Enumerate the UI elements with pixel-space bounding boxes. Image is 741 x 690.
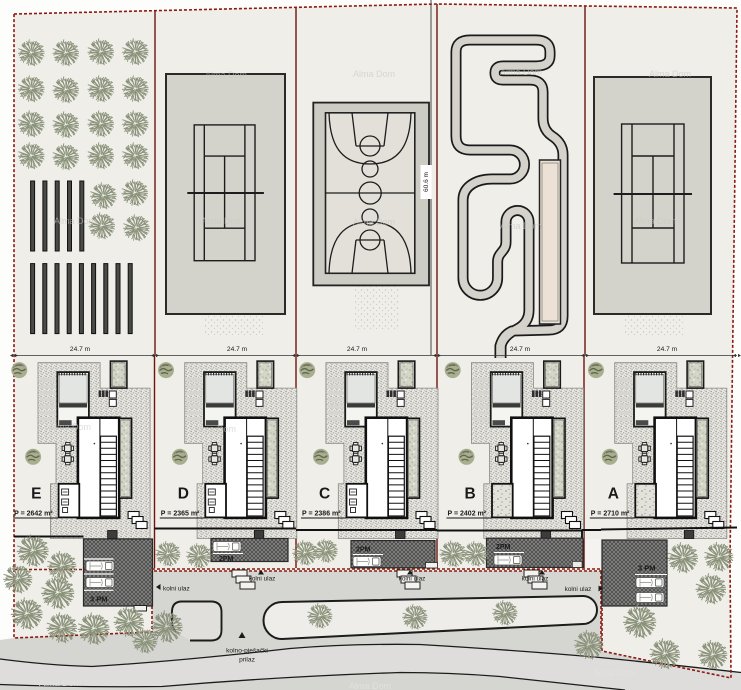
- svg-text:24.7 m: 24.7 m: [70, 346, 91, 353]
- svg-text:P = 2402 m²: P = 2402 m²: [448, 511, 487, 518]
- svg-text:B: B: [465, 486, 476, 503]
- svg-text:kolni ulaz: kolni ulaz: [522, 576, 549, 583]
- svg-text:P = 2365 m²: P = 2365 m²: [161, 511, 200, 518]
- svg-text:D: D: [178, 486, 189, 503]
- svg-text:Alma Dom: Alma Dom: [353, 217, 395, 227]
- svg-text:Alma Dom: Alma Dom: [205, 70, 247, 80]
- svg-text:24.7 m: 24.7 m: [657, 346, 678, 353]
- svg-text:Alma Dom: Alma Dom: [54, 216, 96, 226]
- svg-text:prilaz: prilaz: [239, 657, 255, 664]
- svg-text:24.7 m: 24.7 m: [227, 346, 248, 353]
- svg-text:kolni ulaz: kolni ulaz: [399, 576, 426, 583]
- svg-text:Alma Dom: Alma Dom: [594, 668, 636, 678]
- svg-text:60.6 m: 60.6 m: [423, 172, 430, 192]
- svg-text:3 PM: 3 PM: [638, 564, 656, 573]
- svg-text:Alma Dom: Alma Dom: [500, 221, 542, 231]
- svg-text:2PM: 2PM: [219, 556, 234, 563]
- svg-text:P = 2710 m²: P = 2710 m²: [591, 511, 630, 518]
- svg-text:Alma Dom: Alma Dom: [39, 678, 81, 688]
- svg-text:Alma Dom: Alma Dom: [349, 681, 391, 690]
- svg-text:Alma Dom: Alma Dom: [500, 67, 542, 77]
- svg-text:24.7 m: 24.7 m: [510, 346, 531, 353]
- svg-text:P = 2386 m²: P = 2386 m²: [302, 511, 341, 518]
- svg-text:Alma Dom: Alma Dom: [353, 69, 395, 79]
- svg-text:3 PM: 3 PM: [90, 595, 108, 604]
- svg-text:Alma Dom: Alma Dom: [201, 216, 243, 226]
- svg-text:E: E: [31, 486, 41, 503]
- svg-text:C: C: [319, 486, 330, 503]
- svg-text:Alma Dom: Alma Dom: [194, 424, 236, 434]
- svg-text:2PM: 2PM: [496, 544, 511, 551]
- svg-text:kolno-pješački: kolno-pješački: [226, 648, 268, 655]
- svg-text:Alma Dom: Alma Dom: [634, 216, 676, 226]
- svg-text:Alma Dom: Alma Dom: [649, 69, 691, 79]
- svg-text:P = 2642 m²: P = 2642 m²: [14, 511, 53, 518]
- svg-text:kolni ulaz: kolni ulaz: [565, 586, 592, 593]
- svg-text:2PM: 2PM: [356, 547, 371, 554]
- svg-text:kolni ulaz: kolni ulaz: [249, 576, 276, 583]
- svg-text:Alma Dom: Alma Dom: [49, 422, 91, 432]
- svg-text:24.7 m: 24.7 m: [347, 346, 368, 353]
- svg-text:A: A: [608, 486, 619, 503]
- svg-text:kolni ulaz: kolni ulaz: [163, 586, 190, 593]
